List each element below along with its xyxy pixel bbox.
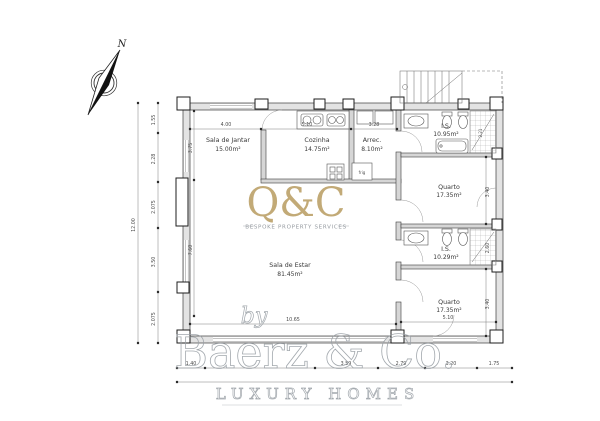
dim-label: 5.10 <box>443 315 454 321</box>
room-label-is1: I.S. 10.95m² <box>433 123 459 138</box>
compass-north-icon: N <box>88 39 128 115</box>
qc-tagline: BESPOKE PROPERTY SERVICES <box>245 225 347 231</box>
room-area: 10.95m² <box>433 131 459 138</box>
dim-label: 1.55 <box>151 115 157 126</box>
room-area: 10.29m² <box>433 254 459 261</box>
floor-plan-page: N <box>0 0 600 421</box>
room-area: 15.00m² <box>215 146 241 153</box>
dimension-quarto2-width: 5.10 <box>400 315 497 323</box>
dimension-estar-width: 10.65 <box>189 317 397 325</box>
dim-label: 10.65 <box>286 317 300 323</box>
room-name: Sala de Jantar <box>206 137 250 144</box>
baerz-tagline: LUXURY HOMES <box>216 385 421 403</box>
room-name: Sala de Estar <box>269 262 311 269</box>
room-label-is2: I.S. 10.29m² <box>433 246 459 261</box>
dim-label: 3.28 <box>369 122 380 128</box>
room-area: 17.35m² <box>436 192 462 199</box>
dim-label: 2.075 <box>151 312 157 326</box>
dim-label: 5.10 <box>302 122 313 128</box>
room-label-cozinha: Cozinha 14.75m² <box>304 137 330 153</box>
watermark-baerz: by Baerz & Co. LUXURY HOMES <box>174 304 456 405</box>
room-label-quarto2: Quarto 17.35m² <box>436 299 462 314</box>
room-name: Quarto <box>438 299 460 306</box>
compass-north-label: N <box>117 39 128 50</box>
room-name: Cozinha <box>304 137 329 144</box>
room-label-arrec: Arrec. 8.10m² <box>361 137 383 153</box>
room-area: 17.35m² <box>436 307 462 314</box>
room-area: 14.75m² <box>304 146 330 153</box>
dimension-left-chain: 1.55 2.28 2.075 3.50 2.075 <box>151 102 159 344</box>
fridge-label: frig <box>359 170 366 175</box>
dim-label: 3.40 <box>485 187 491 198</box>
dim-label: 2.60 <box>485 243 491 254</box>
qc-logo: Q&C <box>246 180 345 226</box>
room-name: I.S. <box>441 123 451 130</box>
dim-label: 3.75 <box>188 143 194 154</box>
dim-label: 3.50 <box>151 257 157 268</box>
watermark-qc: Q&C BESPOKE PROPERTY SERVICES <box>243 180 349 231</box>
dim-label: 2.28 <box>151 154 157 165</box>
fridge-icon: frig <box>352 163 372 180</box>
dim-label: 2.21 <box>478 128 483 137</box>
dim-label: 7.60 <box>188 245 194 256</box>
dim-label: 3.40 <box>485 299 491 310</box>
room-area: 8.10m² <box>361 146 383 153</box>
dim-label: 4.00 <box>221 122 232 128</box>
baerz-brand: Baerz & Co. <box>174 325 456 379</box>
room-name: Arrec. <box>363 137 382 144</box>
dimension-bottom-total <box>176 381 513 383</box>
room-name: I.S. <box>441 246 451 253</box>
dimension-left-total: 12.00 <box>131 102 139 344</box>
room-label-sala-de-estar: Sala de Estar 81.45m² <box>269 262 311 278</box>
stove-icon <box>327 164 344 180</box>
dim-label: 2.075 <box>151 200 157 214</box>
staircase <box>400 71 502 103</box>
room-area: 81.45m² <box>277 271 303 278</box>
room-name: Quarto <box>438 184 460 191</box>
room-label-quarto1: Quarto 17.35m² <box>436 184 462 199</box>
dim-label: 12.00 <box>131 218 137 232</box>
floor-plan-drawing: N <box>0 0 600 421</box>
room-label-sala-de-jantar: Sala de Jantar 15.00m² <box>206 137 250 153</box>
dim-label: 1.75 <box>489 361 500 367</box>
